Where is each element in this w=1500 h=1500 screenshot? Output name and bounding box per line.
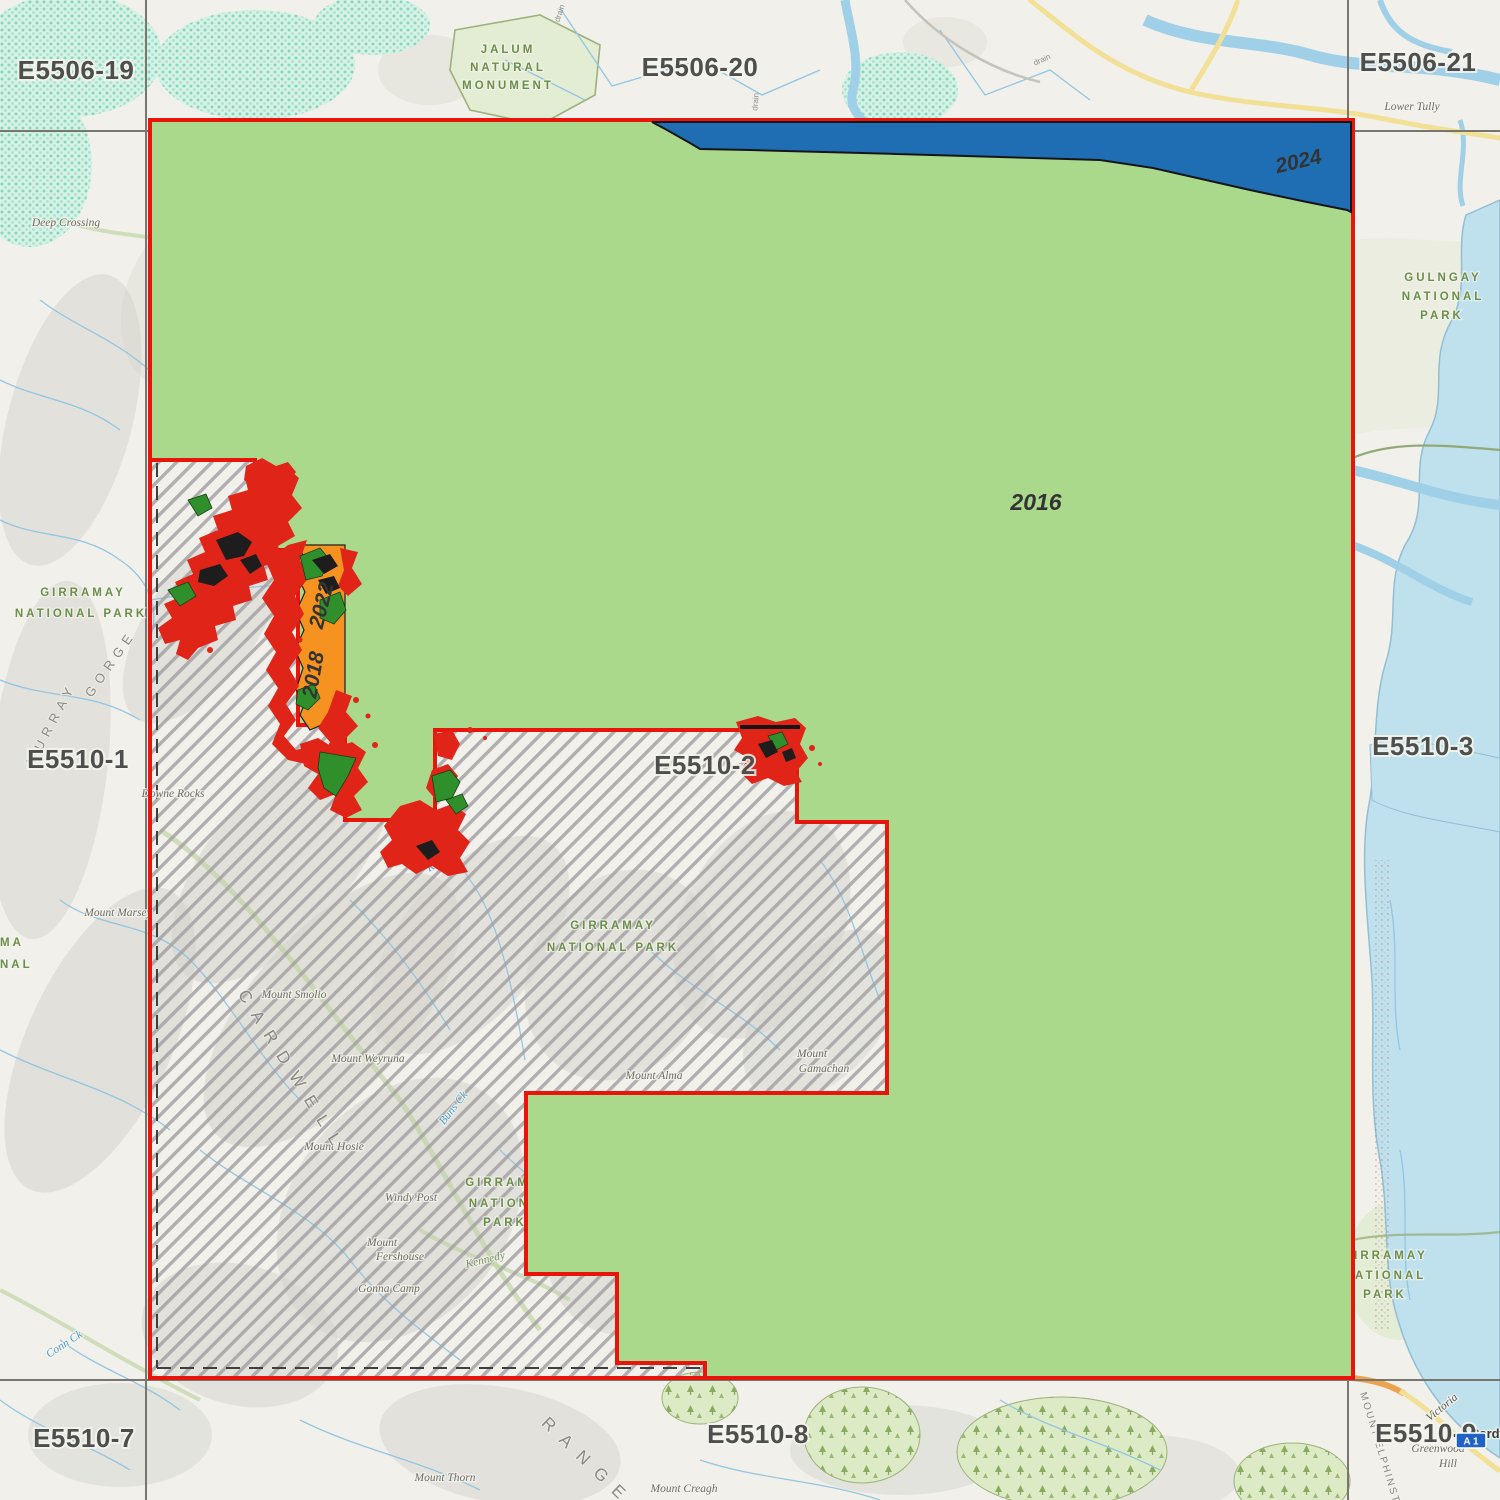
svg-text:PARK: PARK bbox=[1363, 1289, 1407, 1301]
place-mount-gamachan: Mount bbox=[796, 1048, 828, 1060]
svg-text:NATIONAL PARK: NATIONAL PARK bbox=[15, 608, 147, 620]
grid-label-e5506-20: E5506-20 bbox=[642, 52, 759, 82]
grid-label-e5510-3: E5510-3 bbox=[1372, 731, 1474, 761]
svg-text:Gamachan: Gamachan bbox=[799, 1063, 850, 1075]
grid-label-e5510-8: E5510-8 bbox=[707, 1419, 809, 1449]
place-lower-tully: Lower Tully bbox=[1383, 101, 1440, 113]
place-mount-smolio: Mount Smolio bbox=[261, 989, 327, 1001]
park-label-gulngay: GULNGAY bbox=[1404, 272, 1481, 284]
svg-text:Hill: Hill bbox=[1438, 1458, 1457, 1470]
place-deep-crossing: Deep Crossing bbox=[31, 217, 101, 229]
svg-text:NATIONAL: NATIONAL bbox=[1344, 1270, 1427, 1282]
svg-text:NATIONAL: NATIONAL bbox=[1402, 291, 1485, 303]
place-windy-post: Windy Post bbox=[385, 1192, 438, 1204]
place-mount-weyruna: Mount Weyruna bbox=[330, 1053, 405, 1065]
svg-text:NAL: NAL bbox=[0, 959, 33, 971]
grid-label-e5510-2: E5510-2 bbox=[654, 750, 756, 780]
map-canvas[interactable]: JALUM NATURAL MONUMENT GULNGAY NATIONAL … bbox=[0, 0, 1500, 1500]
svg-text:PARK: PARK bbox=[1420, 310, 1464, 322]
drain-label: drain bbox=[750, 93, 761, 112]
park-label-girramay-east: GIRRAMAY bbox=[1342, 1250, 1428, 1262]
grid-label-e5510-1: E5510-1 bbox=[27, 744, 129, 774]
svg-text:MONUMENT: MONUMENT bbox=[462, 80, 554, 92]
grid-label-e5510-7: E5510-7 bbox=[33, 1423, 135, 1453]
map-svg: JALUM NATURAL MONUMENT GULNGAY NATIONAL … bbox=[0, 0, 1500, 1500]
place-mount-thorn: Mount Thorn bbox=[413, 1472, 475, 1484]
park-label-jalum: JALUM bbox=[481, 44, 536, 56]
svg-text:A 1: A 1 bbox=[1463, 1437, 1479, 1448]
park-label-girramay-west: GIRRAMAY bbox=[40, 587, 126, 599]
svg-text:NATIONAL PARK: NATIONAL PARK bbox=[547, 942, 679, 954]
park-label-edge-partial: MA bbox=[0, 937, 24, 949]
place-gonna-camp: Gonna Camp bbox=[358, 1283, 420, 1295]
svg-text:PARK: PARK bbox=[483, 1217, 527, 1229]
place-mount-marsey: Mount Marsey bbox=[83, 907, 152, 919]
place-mount-alma: Mount Alma bbox=[625, 1070, 683, 1082]
grid-label-e5506-19: E5506-19 bbox=[18, 55, 135, 85]
grid-label-e5506-21: E5506-21 bbox=[1360, 47, 1477, 77]
a1-road-shield: A 1 bbox=[1456, 1433, 1486, 1448]
label-2016: 2016 bbox=[1009, 489, 1061, 515]
place-mount-creagh: Mount Creagh bbox=[650, 1483, 718, 1495]
svg-text:Fershouse: Fershouse bbox=[375, 1251, 424, 1263]
place-mount-fershouse: Mount bbox=[366, 1237, 398, 1249]
park-label-girramay-center: GIRRAMAY bbox=[570, 920, 656, 932]
svg-text:NATURAL: NATURAL bbox=[470, 62, 546, 74]
